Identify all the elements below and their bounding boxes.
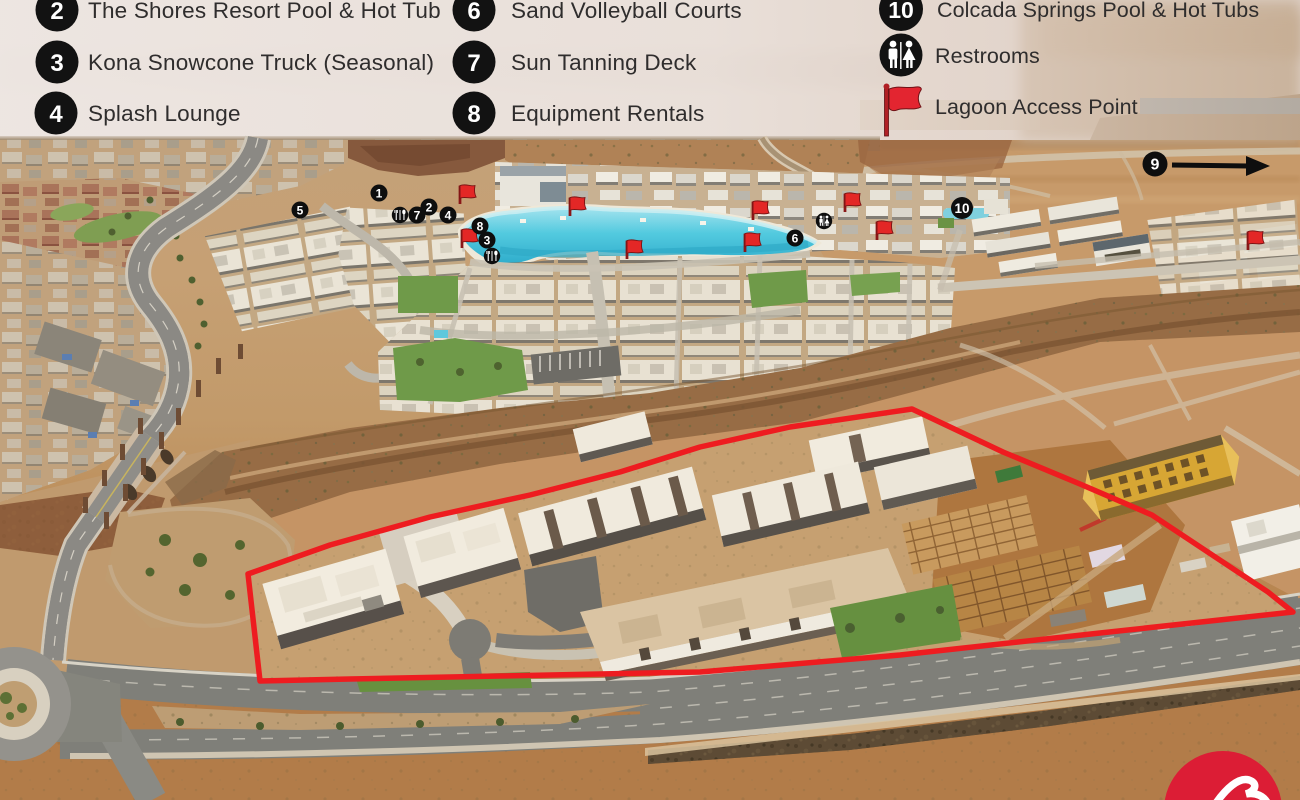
svg-text:Colcada Springs Pool & Hot Tub: Colcada Springs Pool & Hot Tubs <box>937 0 1259 22</box>
svg-text:Kona Snowcone Truck (Seasonal): Kona Snowcone Truck (Seasonal) <box>88 50 434 75</box>
svg-text:7: 7 <box>414 208 421 222</box>
svg-text:2: 2 <box>426 200 433 214</box>
svg-text:Equipment Rentals: Equipment Rentals <box>511 101 705 126</box>
svg-text:4: 4 <box>49 101 63 128</box>
svg-text:6: 6 <box>467 0 480 25</box>
svg-text:Lagoon Access Point: Lagoon Access Point <box>935 95 1138 119</box>
svg-text:3: 3 <box>50 50 63 77</box>
svg-text:7: 7 <box>467 50 480 77</box>
svg-text:Restrooms: Restrooms <box>935 44 1040 68</box>
svg-text:4: 4 <box>445 208 452 222</box>
svg-text:8: 8 <box>467 101 480 128</box>
svg-text:Sand Volleyball Courts: Sand Volleyball Courts <box>511 0 742 23</box>
svg-text:The Shores Resort Pool & Hot T: The Shores Resort Pool & Hot Tub <box>88 0 441 23</box>
svg-text:10: 10 <box>954 201 969 216</box>
svg-text:1: 1 <box>376 186 383 200</box>
svg-text:5: 5 <box>297 203 304 217</box>
svg-text:Sun Tanning Deck: Sun Tanning Deck <box>511 50 697 75</box>
svg-text:2: 2 <box>50 0 63 25</box>
svg-text:9: 9 <box>1151 157 1160 174</box>
svg-text:10: 10 <box>888 0 914 23</box>
svg-text:8: 8 <box>477 219 484 233</box>
svg-text:6: 6 <box>792 231 799 245</box>
svg-text:3: 3 <box>484 233 491 247</box>
svg-text:Splash Lounge: Splash Lounge <box>88 101 241 126</box>
